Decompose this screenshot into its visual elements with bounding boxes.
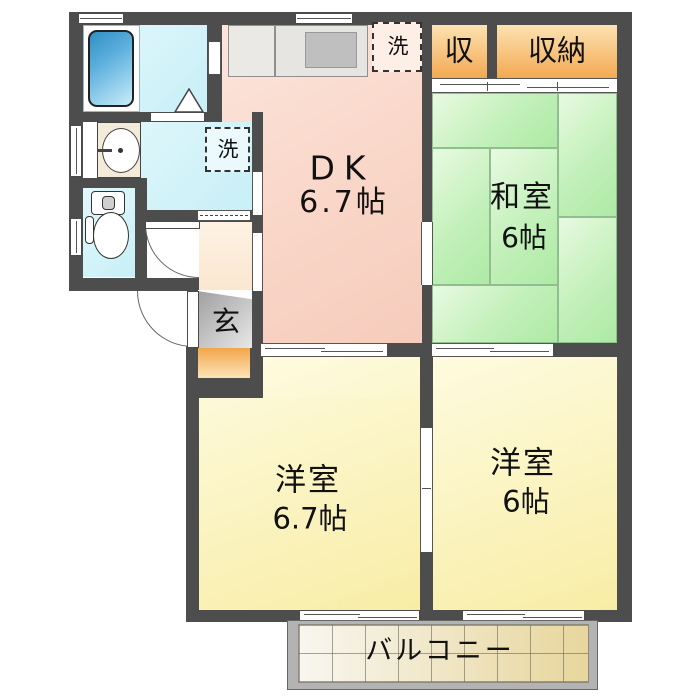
washroom-door xyxy=(198,210,250,221)
window-washroom-left xyxy=(70,125,82,177)
dk-washitsu-door xyxy=(421,222,433,285)
toilet-tank-button xyxy=(102,196,115,210)
toilet-handle xyxy=(85,216,94,244)
floor-plan: DK 6.7帖 和室 6帖 洋室 6.7帖 洋室 6帖 収 収納 玄 洗 洗 バ… xyxy=(0,0,700,700)
wall-toilet-top xyxy=(69,178,147,188)
balcony-label: バルコニー xyxy=(365,638,514,665)
tatami-mat xyxy=(432,93,558,148)
bathtub-icon xyxy=(88,30,134,107)
tatami-mat xyxy=(432,285,558,343)
room-western-right-size: 6帖 xyxy=(502,488,549,517)
western-rooms-door xyxy=(420,428,433,552)
room-western-left-label: 洋室 xyxy=(275,466,341,497)
entrance-step xyxy=(198,348,250,378)
wall-between-closets xyxy=(487,25,497,78)
tatami-mat xyxy=(432,148,490,285)
window-bath-top xyxy=(78,13,124,24)
tatami-mat xyxy=(490,148,558,285)
bath-vent-slot xyxy=(208,42,221,74)
tatami-mat xyxy=(558,93,617,217)
room-dk-label: DK xyxy=(309,152,374,185)
entrance-hall-floor xyxy=(198,222,252,292)
closet-small-label: 収 xyxy=(444,37,473,66)
window-toilet-left xyxy=(70,218,82,256)
laundry-dk-label: 洗 xyxy=(388,37,409,58)
toilet-bowl-icon xyxy=(93,212,129,259)
closet-fusuma-doors xyxy=(432,78,617,93)
kitchen-sink-icon xyxy=(305,32,357,68)
hall-door-leaf xyxy=(145,221,200,229)
entrance-door-leaf xyxy=(187,291,199,348)
washroom-dk-door xyxy=(252,172,263,215)
washbasin-drain xyxy=(118,148,123,153)
room-washitsu-size: 6帖 xyxy=(501,224,547,252)
dk-western-door xyxy=(261,343,387,357)
wall-right xyxy=(617,12,632,622)
closet-big-label: 収納 xyxy=(528,37,586,66)
kitchen-counter xyxy=(228,25,275,77)
room-dk-size: 6.7帖 xyxy=(299,188,389,218)
tatami-mat xyxy=(558,217,617,343)
wall-dk-washitsu xyxy=(422,12,432,345)
entrance-door-swing xyxy=(137,291,193,347)
room-western-right-label: 洋室 xyxy=(490,449,556,480)
washitsu-western-door xyxy=(432,343,553,357)
faucet-icon xyxy=(98,149,112,152)
room-washitsu-label: 和室 xyxy=(490,183,554,213)
room-western-left-size: 6.7帖 xyxy=(272,505,347,534)
laundry-washroom-label: 洗 xyxy=(218,140,239,161)
bath-door-icon xyxy=(173,88,205,114)
bath-door xyxy=(150,112,205,122)
genkan-label: 玄 xyxy=(212,308,240,336)
room-western-right-floor xyxy=(433,357,617,610)
hall-dk-door xyxy=(252,233,263,291)
wall-mid-seg2 xyxy=(553,343,632,357)
wall-mid-seg1 xyxy=(387,343,433,357)
window-kitchen-top xyxy=(295,13,353,24)
wall-below-step xyxy=(186,378,263,398)
wall-upperleft-bottom xyxy=(69,278,199,291)
